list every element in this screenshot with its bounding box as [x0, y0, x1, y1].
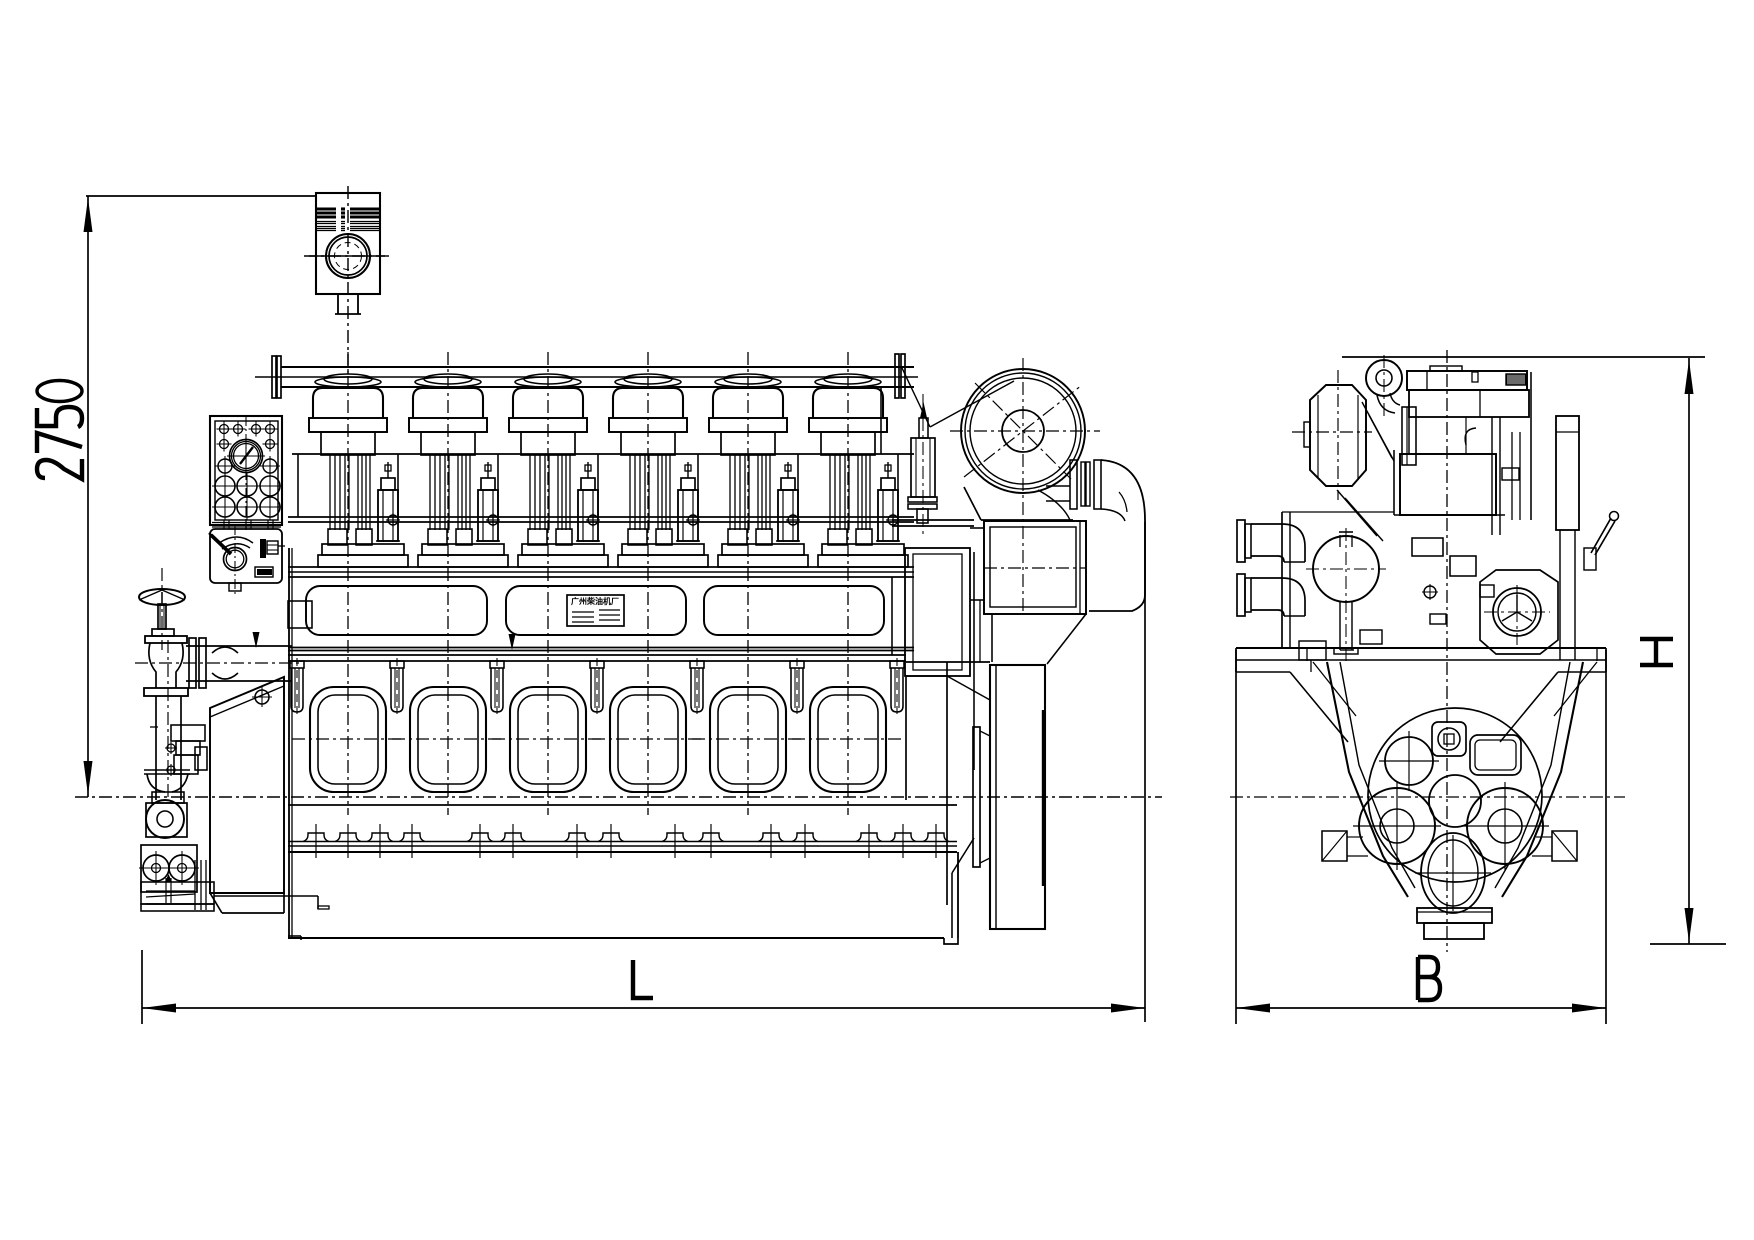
svg-text:广州柴油机厂: 广州柴油机厂 — [571, 596, 619, 606]
